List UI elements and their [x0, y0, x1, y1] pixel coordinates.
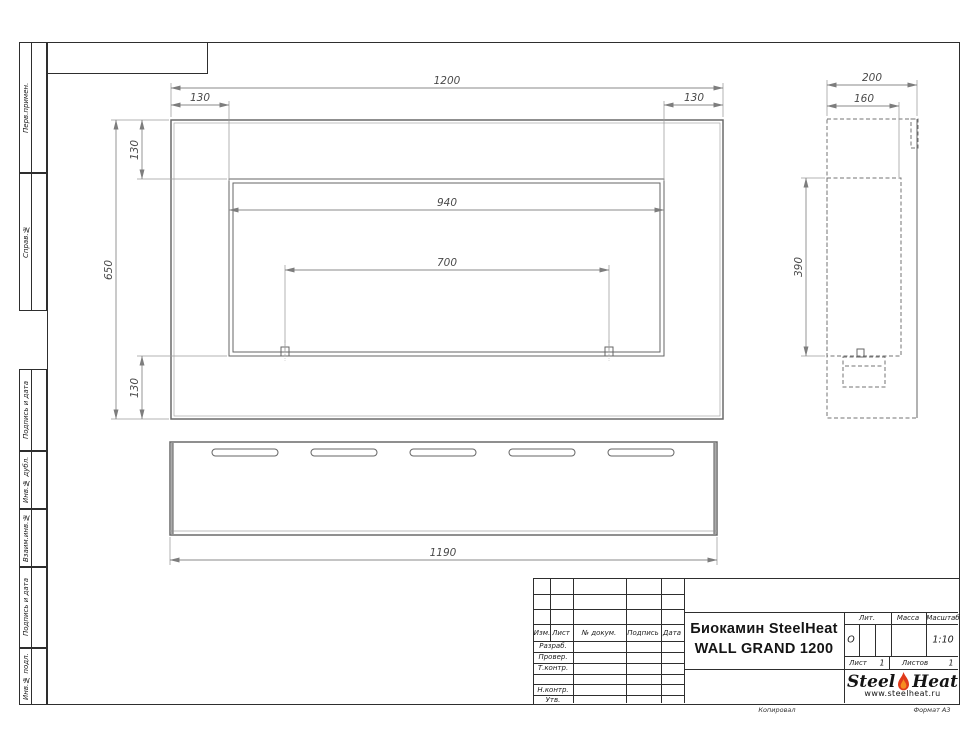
side-burner-block — [843, 357, 885, 387]
bottom-view: 1190 — [170, 442, 717, 565]
tb-line — [534, 594, 684, 595]
tb-line — [859, 624, 860, 656]
tb-line — [534, 674, 684, 675]
front-panel-inner-edge — [174, 123, 720, 416]
tb-row-utv: Утв. — [546, 696, 561, 704]
tb-header-doc: № докум. — [582, 629, 617, 637]
tb-scale-value: 1:10 — [932, 635, 953, 646]
title-block: Изм. Лист № докум. Подпись Дата Разраб. … — [533, 578, 960, 705]
steelheat-logo: Steel Heat www.steelheat.ru — [844, 670, 961, 698]
tb-mass-label: Масса — [897, 614, 919, 622]
tb-sheet-value: 1 — [879, 658, 884, 667]
side-view: 200 160 390 — [793, 72, 918, 418]
dim-text-650: 650 — [103, 260, 115, 280]
front-outer-panel — [171, 120, 723, 419]
front-view: 1200 130 130 650 130 130 940 700 — [103, 75, 723, 419]
side-firebox-hidden — [827, 178, 901, 356]
tb-scale-label: Масштаб — [926, 614, 959, 622]
tb-line — [534, 609, 684, 610]
side-body-hidden — [827, 119, 917, 418]
dim-text-160: 160 — [854, 93, 874, 105]
footer-format: Формат А3 — [897, 706, 967, 714]
dim-text-1190: 1190 — [430, 547, 457, 559]
tb-line — [891, 612, 892, 656]
tb-lit-label: Лит. — [859, 614, 875, 622]
dim-text-200: 200 — [862, 72, 882, 84]
tb-line — [844, 656, 958, 657]
dim-text-1200: 1200 — [434, 75, 461, 87]
footer-copied-by: Копировал — [742, 706, 812, 714]
dim-text-700: 700 — [437, 257, 457, 269]
tb-line — [684, 579, 685, 703]
tb-row-nkontr: Н.контр. — [537, 686, 568, 694]
tb-header-date: Дата — [663, 629, 681, 637]
tb-header-list: Лист — [552, 629, 570, 637]
dim-text-130-left: 130 — [190, 92, 210, 104]
vent-slot-2 — [311, 449, 377, 456]
vent-slot-5 — [608, 449, 674, 456]
vent-slot-4 — [509, 449, 575, 456]
tb-row-prover: Провер. — [538, 653, 567, 661]
tb-lit-value: О — [847, 635, 854, 646]
vent-slot-1 — [212, 449, 278, 456]
tb-line — [889, 656, 890, 669]
document-title-line1: Биокамин SteelHeat — [690, 621, 837, 637]
tb-header-sign: Подпись — [627, 629, 659, 637]
tb-sheets-label: Листов — [902, 659, 928, 667]
tb-line — [684, 612, 958, 613]
document-title-line2: WALL GRAND 1200 — [695, 641, 834, 657]
dim-text-940: 940 — [437, 197, 457, 209]
tb-line — [875, 624, 876, 656]
tb-header-izm: Изм. — [534, 629, 550, 637]
vent-slot-3 — [410, 449, 476, 456]
dim-text-130-top: 130 — [129, 140, 141, 160]
tb-line — [534, 624, 684, 625]
tb-row-tkontr: Т.контр. — [538, 664, 568, 672]
tb-sheet-label: Лист — [849, 659, 867, 667]
dim-text-390: 390 — [793, 257, 805, 277]
dim-text-130-right: 130 — [684, 92, 704, 104]
dim-text-130-bottom: 130 — [129, 378, 141, 398]
tb-line — [844, 624, 958, 625]
tb-row-razrab: Разраб. — [539, 642, 567, 650]
tb-sheets-value: 1 — [948, 658, 953, 667]
